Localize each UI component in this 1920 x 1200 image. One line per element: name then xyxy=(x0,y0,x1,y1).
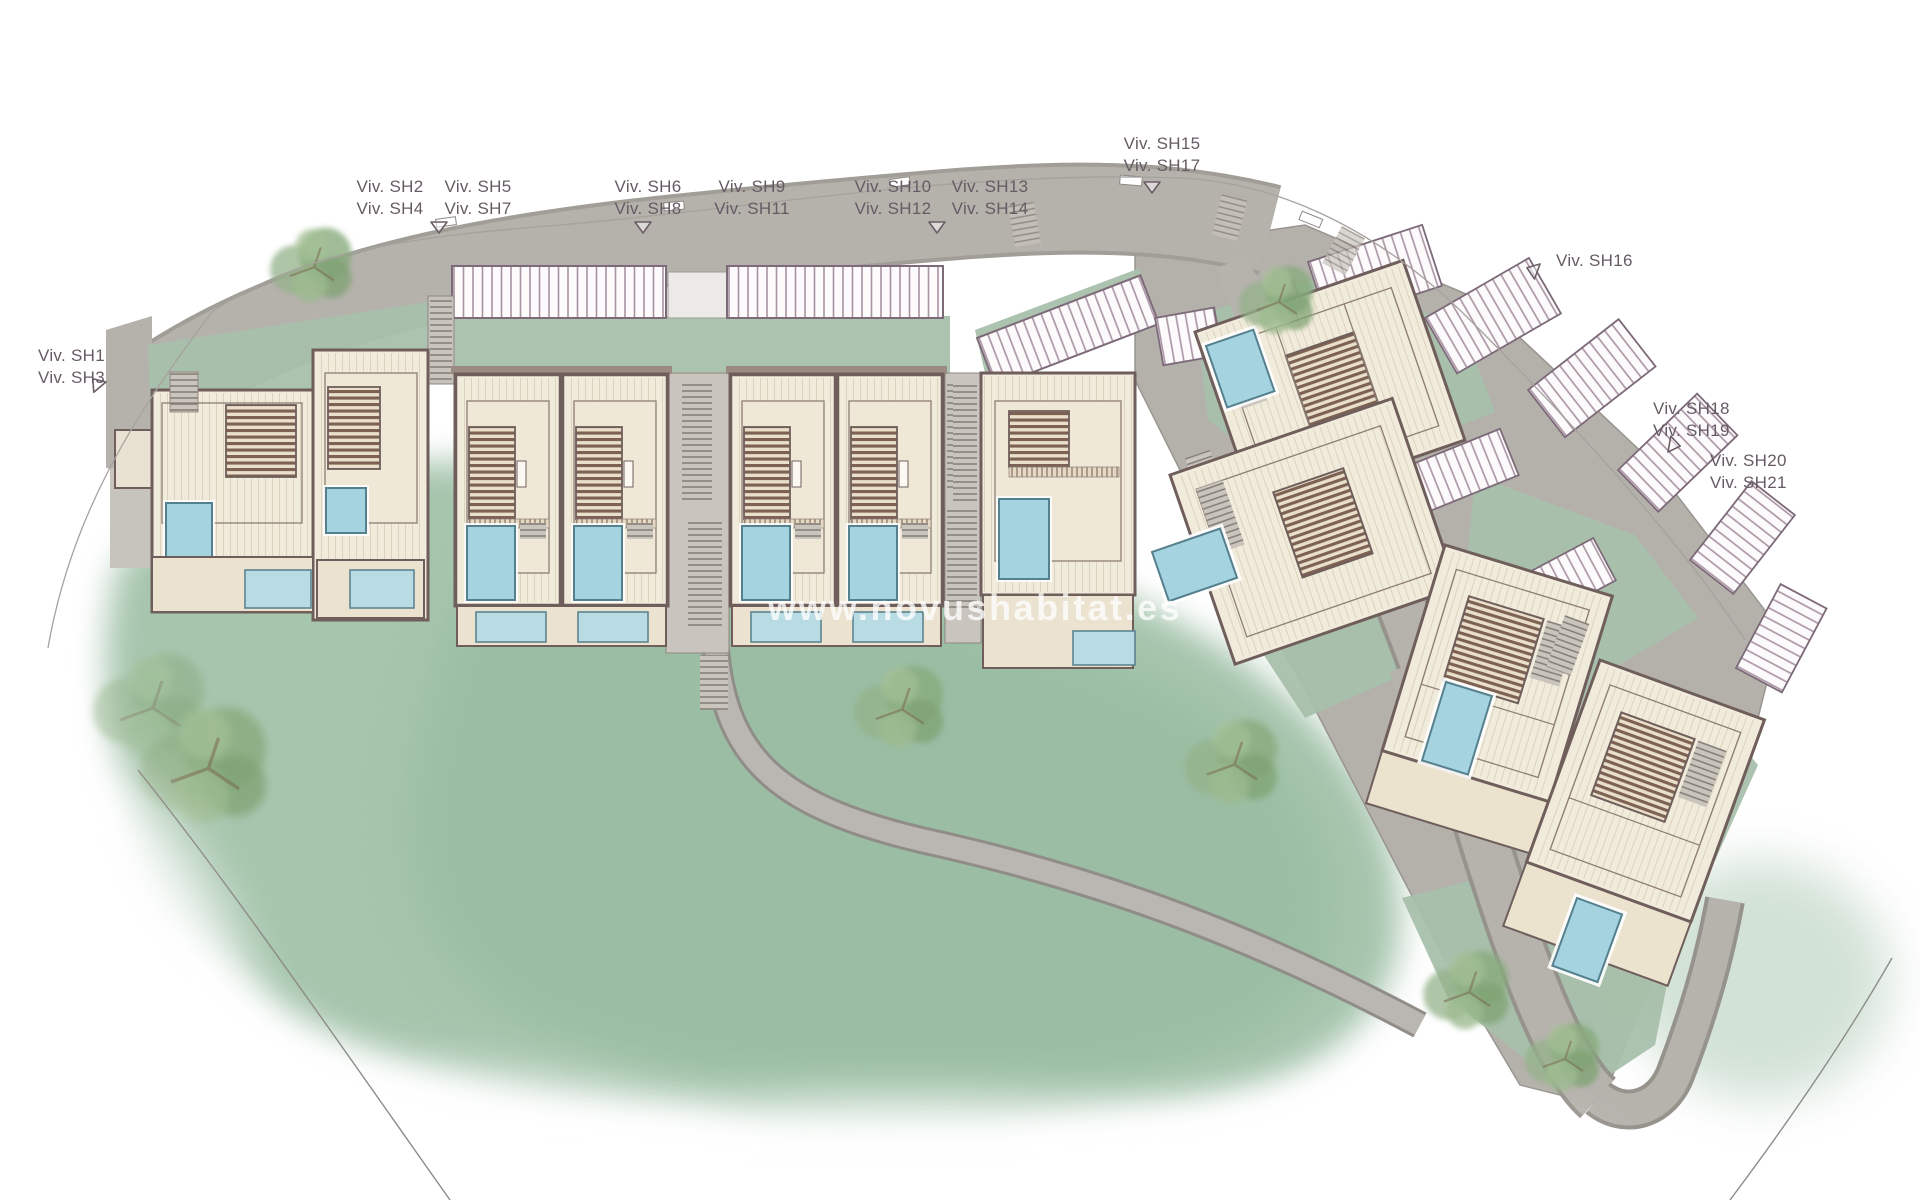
plot-label-line: Viv. SH9 xyxy=(714,176,789,198)
watermark: www.novushabitat.es xyxy=(768,587,1182,629)
plot-label-viv-sh1-sh3: Viv. SH1 Viv. SH3 xyxy=(38,345,105,390)
site-plan: Viv. SH1 Viv. SH3 Viv. SH2 Viv. SH4 Viv.… xyxy=(0,0,1920,1200)
plot-label-line: Viv. SH11 xyxy=(714,198,789,220)
plot-label-viv-sh16: Viv. SH16 xyxy=(1556,250,1633,272)
plot-label-line: Viv. SH18 xyxy=(1653,398,1730,420)
plot-label-viv-sh10-sh12: Viv. SH10 Viv. SH12 xyxy=(855,176,932,221)
plot-label-viv-sh20-sh21: Viv. SH20 Viv. SH21 xyxy=(1710,450,1787,495)
plot-label-line: Viv. SH19 xyxy=(1653,420,1730,442)
plot-label-line: Viv. SH8 xyxy=(615,198,682,220)
pergola-band xyxy=(727,266,943,318)
plot-label-viv-sh9-sh11: Viv. SH9 Viv. SH11 xyxy=(714,176,789,221)
plot-label-line: Viv. SH14 xyxy=(952,198,1029,220)
plot-label-line: Viv. SH1 xyxy=(38,345,105,367)
villa-block-sh1-sh4 xyxy=(115,350,428,620)
plot-label-viv-sh6-sh8: Viv. SH6 Viv. SH8 xyxy=(615,176,682,221)
plot-label-line: Viv. SH13 xyxy=(952,176,1029,198)
villa-pair-sh5-sh8 xyxy=(451,366,672,646)
plot-label-line: Viv. SH16 xyxy=(1556,250,1633,272)
plot-label-line: Viv. SH12 xyxy=(855,198,932,220)
pergola-band xyxy=(977,275,1159,386)
plot-label-viv-sh18-sh19: Viv. SH18 Viv. SH19 xyxy=(1653,398,1730,443)
plot-label-viv-sh13-sh14: Viv. SH13 Viv. SH14 xyxy=(952,176,1029,221)
plot-label-line: Viv. SH17 xyxy=(1124,155,1201,177)
plot-label-line: Viv. SH7 xyxy=(445,198,512,220)
stairs xyxy=(430,300,452,380)
plot-label-line: Viv. SH15 xyxy=(1124,133,1201,155)
pergola-band xyxy=(452,266,666,318)
plot-label-viv-sh15-sh17: Viv. SH15 Viv. SH17 xyxy=(1124,133,1201,178)
stairs xyxy=(700,655,728,710)
plot-label-line: Viv. SH6 xyxy=(615,176,682,198)
plot-label-viv-sh5-sh7: Viv. SH5 Viv. SH7 xyxy=(445,176,512,221)
plot-label-line: Viv. SH4 xyxy=(357,198,424,220)
plot-label-line: Viv. SH10 xyxy=(855,176,932,198)
plot-label-line: Viv. SH21 xyxy=(1710,472,1787,494)
plot-label-line: Viv. SH5 xyxy=(445,176,512,198)
plot-label-line: Viv. SH3 xyxy=(38,367,105,389)
plot-label-line: Viv. SH2 xyxy=(357,176,424,198)
plot-label-line: Viv. SH20 xyxy=(1710,450,1787,472)
plot-label-viv-sh2-sh4: Viv. SH2 Viv. SH4 xyxy=(357,176,424,221)
stairs xyxy=(682,382,712,502)
stairs xyxy=(688,520,722,628)
